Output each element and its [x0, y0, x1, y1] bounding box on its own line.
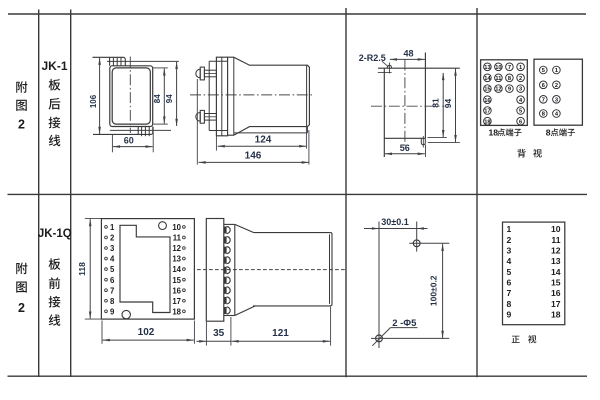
svg-text:3: 3	[507, 245, 512, 255]
svg-text:13: 13	[551, 256, 561, 266]
svg-text:146: 146	[245, 151, 262, 162]
svg-text:2: 2	[555, 83, 558, 89]
svg-text:5: 5	[507, 267, 512, 277]
svg-text:2: 2	[519, 76, 522, 82]
svg-text:17: 17	[551, 299, 561, 309]
svg-text:18: 18	[172, 307, 181, 316]
svg-text:60: 60	[124, 136, 134, 146]
svg-text:2: 2	[18, 117, 25, 131]
svg-text:13: 13	[172, 255, 181, 264]
svg-text:6: 6	[542, 83, 545, 89]
svg-text:18: 18	[489, 127, 499, 137]
svg-text:7: 7	[542, 97, 545, 103]
svg-text:48: 48	[403, 48, 413, 58]
svg-text:16: 16	[551, 288, 561, 298]
svg-text:2-R2.5: 2-R2.5	[359, 53, 386, 63]
svg-text:35: 35	[213, 328, 225, 339]
svg-text:10: 10	[551, 224, 561, 234]
svg-text:124: 124	[255, 134, 272, 145]
svg-text:JK-1Q: JK-1Q	[38, 228, 72, 240]
svg-text:118: 118	[77, 262, 87, 276]
svg-text:7: 7	[508, 65, 511, 71]
svg-text:12: 12	[172, 244, 181, 253]
svg-text:11: 11	[551, 235, 560, 245]
svg-text:100±0.2: 100±0.2	[429, 275, 439, 306]
svg-text:14: 14	[551, 267, 561, 277]
svg-text:18: 18	[484, 119, 490, 125]
svg-text:5: 5	[110, 265, 115, 274]
svg-text:12: 12	[551, 245, 561, 255]
svg-text:102: 102	[138, 327, 155, 338]
svg-text:12: 12	[495, 87, 501, 93]
svg-text:17: 17	[484, 109, 490, 115]
svg-text:10: 10	[495, 65, 501, 71]
svg-text:8: 8	[546, 127, 551, 137]
svg-text:106: 106	[89, 94, 98, 108]
svg-text:6: 6	[519, 119, 522, 125]
svg-text:17: 17	[172, 297, 181, 306]
svg-text:11: 11	[495, 76, 501, 82]
svg-text:6: 6	[507, 278, 512, 288]
svg-text:8: 8	[508, 76, 511, 82]
svg-text:4: 4	[110, 255, 115, 264]
svg-text:15: 15	[172, 276, 181, 285]
svg-text:1: 1	[519, 65, 522, 71]
svg-text:94: 94	[165, 94, 174, 103]
svg-text:9: 9	[507, 310, 512, 320]
svg-text:2: 2	[110, 234, 115, 243]
svg-text:3: 3	[110, 244, 115, 253]
svg-text:121: 121	[272, 328, 289, 339]
svg-text:8: 8	[542, 112, 545, 118]
svg-text:2: 2	[507, 235, 512, 245]
svg-text:16: 16	[484, 98, 490, 104]
svg-text:13: 13	[484, 65, 490, 71]
svg-text:81: 81	[431, 98, 441, 108]
svg-text:8: 8	[507, 299, 512, 309]
svg-text:11: 11	[173, 234, 182, 243]
svg-text:9: 9	[508, 87, 511, 93]
svg-text:9: 9	[110, 307, 115, 316]
svg-text:18: 18	[551, 310, 561, 320]
svg-text:16: 16	[172, 286, 181, 295]
svg-text:3: 3	[555, 97, 558, 103]
svg-text:3: 3	[519, 87, 522, 93]
svg-text:7: 7	[110, 286, 114, 295]
svg-text:7: 7	[507, 288, 512, 298]
svg-text:5: 5	[542, 68, 545, 74]
svg-text:10: 10	[172, 223, 181, 232]
svg-text:14: 14	[172, 265, 181, 274]
svg-text:6: 6	[110, 276, 115, 285]
svg-text:15: 15	[551, 278, 561, 288]
svg-text:JK-1: JK-1	[41, 59, 67, 73]
svg-text:1: 1	[555, 68, 558, 74]
svg-text:84: 84	[153, 94, 162, 103]
svg-text:2: 2	[18, 301, 25, 315]
svg-text:5: 5	[519, 109, 522, 115]
svg-text:1: 1	[110, 223, 115, 232]
svg-text:8: 8	[110, 297, 115, 306]
svg-text:15: 15	[484, 87, 490, 93]
svg-text:56: 56	[400, 143, 410, 153]
svg-text:1: 1	[507, 224, 512, 234]
svg-text:14: 14	[484, 76, 491, 82]
svg-text:4: 4	[507, 256, 512, 266]
svg-text:94: 94	[443, 99, 453, 109]
svg-text:30±0.1: 30±0.1	[381, 217, 408, 227]
